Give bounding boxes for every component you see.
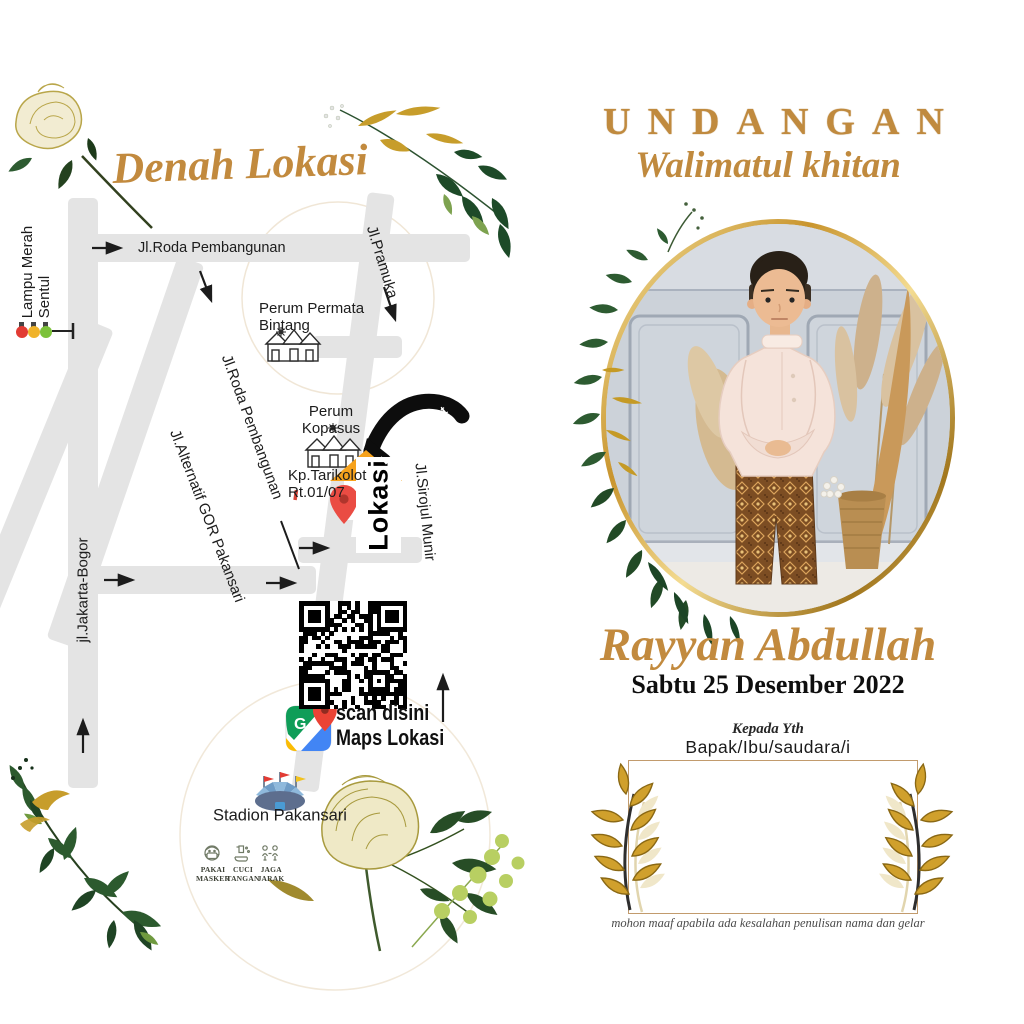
lampu-merah-line1: Lampu Merah	[20, 226, 37, 319]
event-date: Sabtu 25 Desember 2022	[512, 670, 1024, 700]
road-stub-permata	[312, 336, 402, 358]
street-label-roda-horizontal: Jl.Roda Pembangunan	[138, 240, 286, 256]
tarikolot-line2: Rt.01/07	[288, 485, 366, 502]
permata-line2: Bintang	[259, 318, 364, 335]
recipient-intro: Kepada Yth	[512, 721, 1024, 738]
qr-code	[299, 601, 407, 709]
lampu-merah-line2: Sentul	[37, 226, 54, 319]
stadium-label: Stadion Pakansari	[213, 807, 347, 826]
apology-note: mohon maaf apabila ada kesalahan penulis…	[512, 916, 1024, 931]
invitation-title: UNDANGAN	[512, 100, 1024, 144]
landmark-lampu-merah: Lampu Merah Sentul	[20, 226, 54, 319]
landmark-tarikolot: Kp.Tarikolot Rt.01/07	[288, 468, 366, 502]
child-name: Rayyan Abdullah	[512, 618, 1024, 672]
lokasi-marker-label: Lokasi	[364, 459, 395, 551]
qr-caption-line1: scan disini	[336, 701, 444, 726]
landmark-perum-permata: Perum Permata Bintang	[259, 301, 364, 335]
child-photo	[606, 224, 950, 612]
road-lower-horizontal	[70, 566, 316, 594]
qr-caption-line2: Maps Lokasi	[336, 726, 444, 751]
street-label-jakarta-bogor: jl.Jakarta-Bogor	[75, 537, 92, 642]
guest-name-box	[628, 760, 918, 914]
road-jakarta-bogor	[68, 198, 98, 788]
map-title: Denah Lokasi	[111, 134, 368, 194]
photo-illustration	[606, 224, 950, 612]
health-distance-line2: JARAK	[258, 874, 285, 883]
photo-frame-ring	[601, 219, 955, 617]
invitation-subtitle: Walimatul khitan	[512, 144, 1024, 187]
landmark-perum-kopasus: Perum Kopasus	[302, 404, 360, 438]
invitation-card: G	[0, 0, 1024, 1024]
kopasus-line1: Perum	[302, 404, 360, 421]
permata-line1: Perum Permata	[259, 301, 364, 318]
recipient-line: Bapak/Ibu/saudara/i	[512, 737, 1024, 758]
health-protocol-distance: JAGA JARAK	[252, 866, 290, 883]
kopasus-line2: Kopasus	[302, 421, 360, 438]
qr-caption: scan disini Maps Lokasi	[336, 701, 444, 750]
tarikolot-line1: Kp.Tarikolot	[288, 468, 366, 485]
